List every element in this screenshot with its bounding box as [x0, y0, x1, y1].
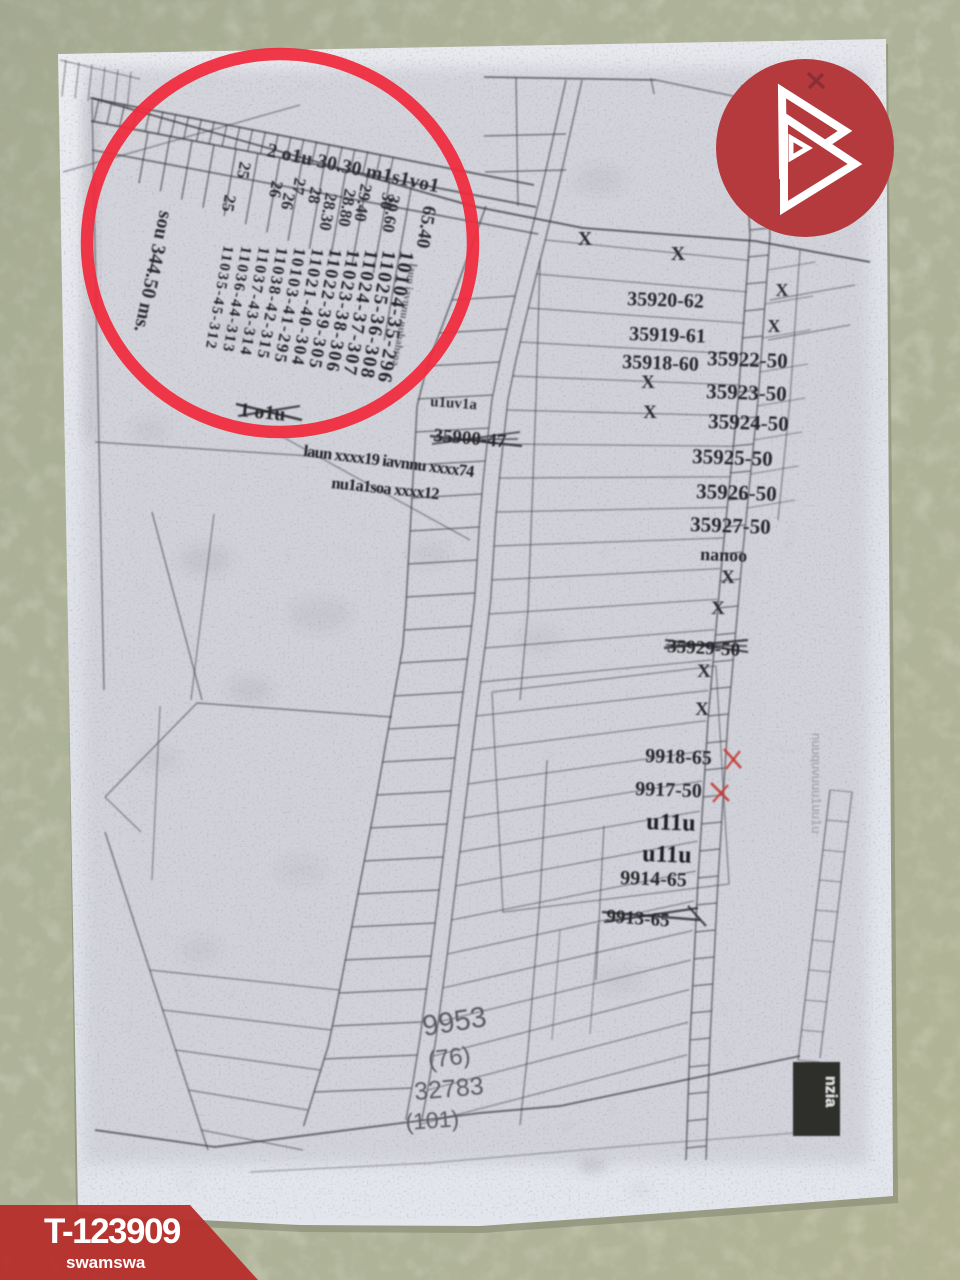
svg-text:25: 25	[233, 160, 255, 180]
svg-text:X: X	[641, 372, 655, 393]
svg-text:X: X	[697, 661, 711, 682]
svg-text:35922-50: 35922-50	[707, 346, 788, 373]
svg-text:X: X	[671, 243, 686, 265]
svg-text:swamswa: swamswa	[66, 1253, 146, 1272]
svg-text:X: X	[721, 567, 735, 588]
svg-text:X: X	[578, 228, 593, 250]
svg-text:(76): (76)	[426, 1042, 472, 1074]
svg-text:nzia: nzia	[822, 1076, 839, 1107]
svg-text:35919-61: 35919-61	[629, 323, 706, 348]
svg-text:9917-50: 9917-50	[635, 778, 702, 802]
svg-text:u11u: u11u	[642, 841, 692, 869]
svg-text:u11u: u11u	[646, 809, 696, 837]
svg-text:9913-65: 9913-65	[606, 906, 671, 931]
svg-text:9914-65: 9914-65	[620, 867, 687, 891]
svg-text:9918-65: 9918-65	[645, 745, 712, 769]
svg-text:nuuquvuuu1uu1u: nuuquvuuu1uu1u	[809, 733, 824, 834]
svg-text:X: X	[768, 316, 781, 336]
svg-text:35920-62: 35920-62	[627, 288, 704, 313]
svg-text:35924-50: 35924-50	[708, 409, 789, 436]
svg-text:35927-50: 35927-50	[690, 512, 771, 539]
svg-text:T-123909: T-123909	[44, 1212, 181, 1251]
svg-text:35923-50: 35923-50	[706, 379, 787, 406]
svg-text:35918-60: 35918-60	[622, 351, 699, 376]
svg-text:35926-50: 35926-50	[696, 479, 777, 506]
svg-text:(101): (101)	[405, 1105, 460, 1135]
svg-text:X: X	[776, 280, 789, 300]
svg-text:nanoo: nanoo	[700, 544, 748, 566]
svg-text:X: X	[711, 598, 725, 619]
svg-text:25: 25	[218, 193, 240, 213]
svg-text:X: X	[643, 402, 657, 423]
svg-text:35925-50: 35925-50	[692, 444, 773, 471]
svg-text:X: X	[695, 699, 709, 720]
